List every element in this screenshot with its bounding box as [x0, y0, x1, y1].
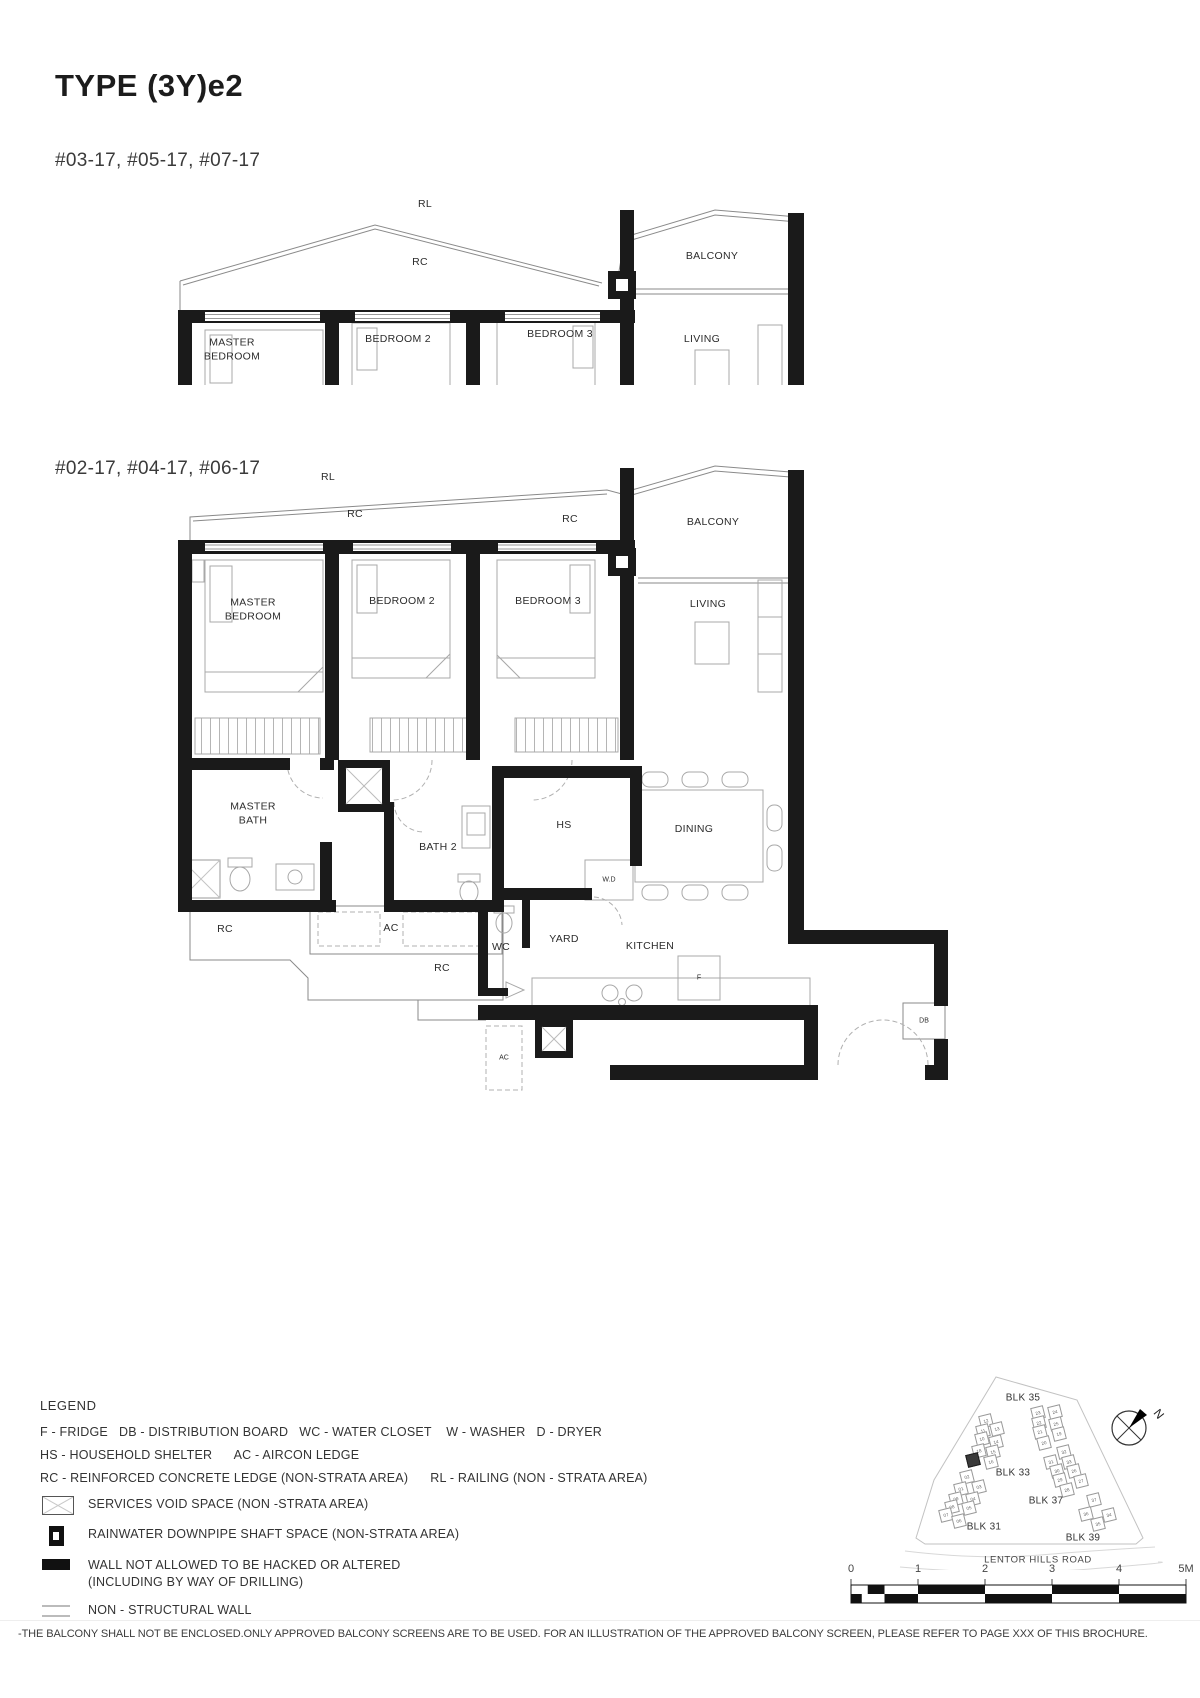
- scale-tick-label: 3: [1049, 1563, 1055, 1575]
- legend: LEGEND F - FRIDGE DB - DISTRIBUTION BOAR…: [40, 1398, 740, 1619]
- site-unit: 27: [1073, 1473, 1089, 1489]
- scale-tick-label: 0: [848, 1563, 854, 1575]
- plan1-windows: [205, 312, 600, 321]
- site-plan-key-map: N 12131110141518161702030109040805070623…: [850, 1270, 1200, 1570]
- site-unit-highlighted: 17: [965, 1452, 981, 1468]
- hacking-wall-icon: [40, 1557, 88, 1570]
- scale-bar-segments: [851, 1585, 1186, 1603]
- floor-plan-lower: RLRCRCBALCONYMASTER BEDROOMBEDROOM 2BEDR…: [170, 460, 970, 1105]
- plan1-furniture: [205, 321, 782, 385]
- legend-symbol-row: RAINWATER DOWNPIPE SHAFT SPACE (NON-STRA…: [40, 1526, 740, 1546]
- plan1-ledge-lines: [180, 210, 798, 311]
- legend-abbreviations-line: RC - REINFORCED CONCRETE LEDGE (NON-STRA…: [40, 1471, 740, 1485]
- scale-tick-label: 1: [915, 1563, 921, 1575]
- block-label: BLK 33: [996, 1468, 1031, 1479]
- plan2-windows: [205, 543, 596, 551]
- legend-symbol-label: RAINWATER DOWNPIPE SHAFT SPACE (NON-STRA…: [88, 1526, 459, 1543]
- footer-divider: [0, 1620, 1200, 1621]
- legend-abbreviations-line: F - FRIDGE DB - DISTRIBUTION BOARD WC - …: [40, 1425, 740, 1439]
- plan1-downpipe-shaft: [616, 279, 628, 291]
- block-label: BLK 35: [1006, 1393, 1041, 1404]
- legend-symbol-label: SERVICES VOID SPACE (NON -STRATA AREA): [88, 1496, 368, 1513]
- brochure-page: TYPE (3Y)e2 #03-17, #05-17, #07-17 #02-1…: [0, 0, 1200, 1698]
- plan1-walls: [178, 210, 804, 385]
- scale-tick-label: 2: [982, 1563, 988, 1575]
- scale-tick-marks: [851, 1579, 1186, 1585]
- legend-symbol-label: NON - STRUCTURAL WALL: [88, 1602, 252, 1619]
- scale-bar-drawing: [845, 1563, 1200, 1615]
- scale-bar: 012345M: [845, 1563, 1200, 1615]
- site-unit: 19: [1051, 1426, 1067, 1442]
- site-unit: 35: [1090, 1516, 1106, 1532]
- legend-symbol-row: WALL NOT ALLOWED TO BE HACKED OR ALTERED…: [40, 1557, 740, 1591]
- legend-symbol-label: WALL NOT ALLOWED TO BE HACKED OR ALTERED…: [88, 1557, 400, 1591]
- floor-plan-lower-drawing: [170, 460, 970, 1105]
- page-title: TYPE (3Y)e2: [55, 68, 243, 104]
- site-unit: 20: [1036, 1435, 1052, 1451]
- block-label: BLK 37: [1029, 1496, 1064, 1507]
- plan1-units-label: #03-17, #05-17, #07-17: [55, 150, 260, 172]
- site-unit: 06: [951, 1513, 967, 1529]
- legend-symbol-row: SERVICES VOID SPACE (NON -STRATA AREA): [40, 1496, 740, 1515]
- floor-plan-upper: RLRCBALCONYMASTER BEDROOMBEDROOM 2BEDROO…: [170, 185, 810, 385]
- block-label: BLK 31: [967, 1522, 1002, 1533]
- block-label: BLK 39: [1066, 1533, 1101, 1544]
- scale-tick-label: 5M: [1178, 1563, 1193, 1575]
- floor-plan-upper-drawing: [170, 185, 810, 385]
- legend-symbol-row: NON - STRUCTURAL WALL: [40, 1602, 740, 1619]
- disclaimer-text: -THE BALCONY SHALL NOT BE ENCLOSED.ONLY …: [18, 1628, 1188, 1640]
- non-structural-wall-icon: [40, 1602, 88, 1617]
- scale-tick-label: 4: [1116, 1563, 1122, 1575]
- rainwater-downpipe-icon: [40, 1526, 88, 1546]
- services-void-icon: [40, 1496, 88, 1515]
- site-units-layer: 1213111014151816170203010904080507062324…: [850, 1270, 1200, 1570]
- legend-abbreviations-line: HS - HOUSEHOLD SHELTER AC - AIRCON LEDGE: [40, 1448, 740, 1462]
- legend-title: LEGEND: [40, 1398, 740, 1413]
